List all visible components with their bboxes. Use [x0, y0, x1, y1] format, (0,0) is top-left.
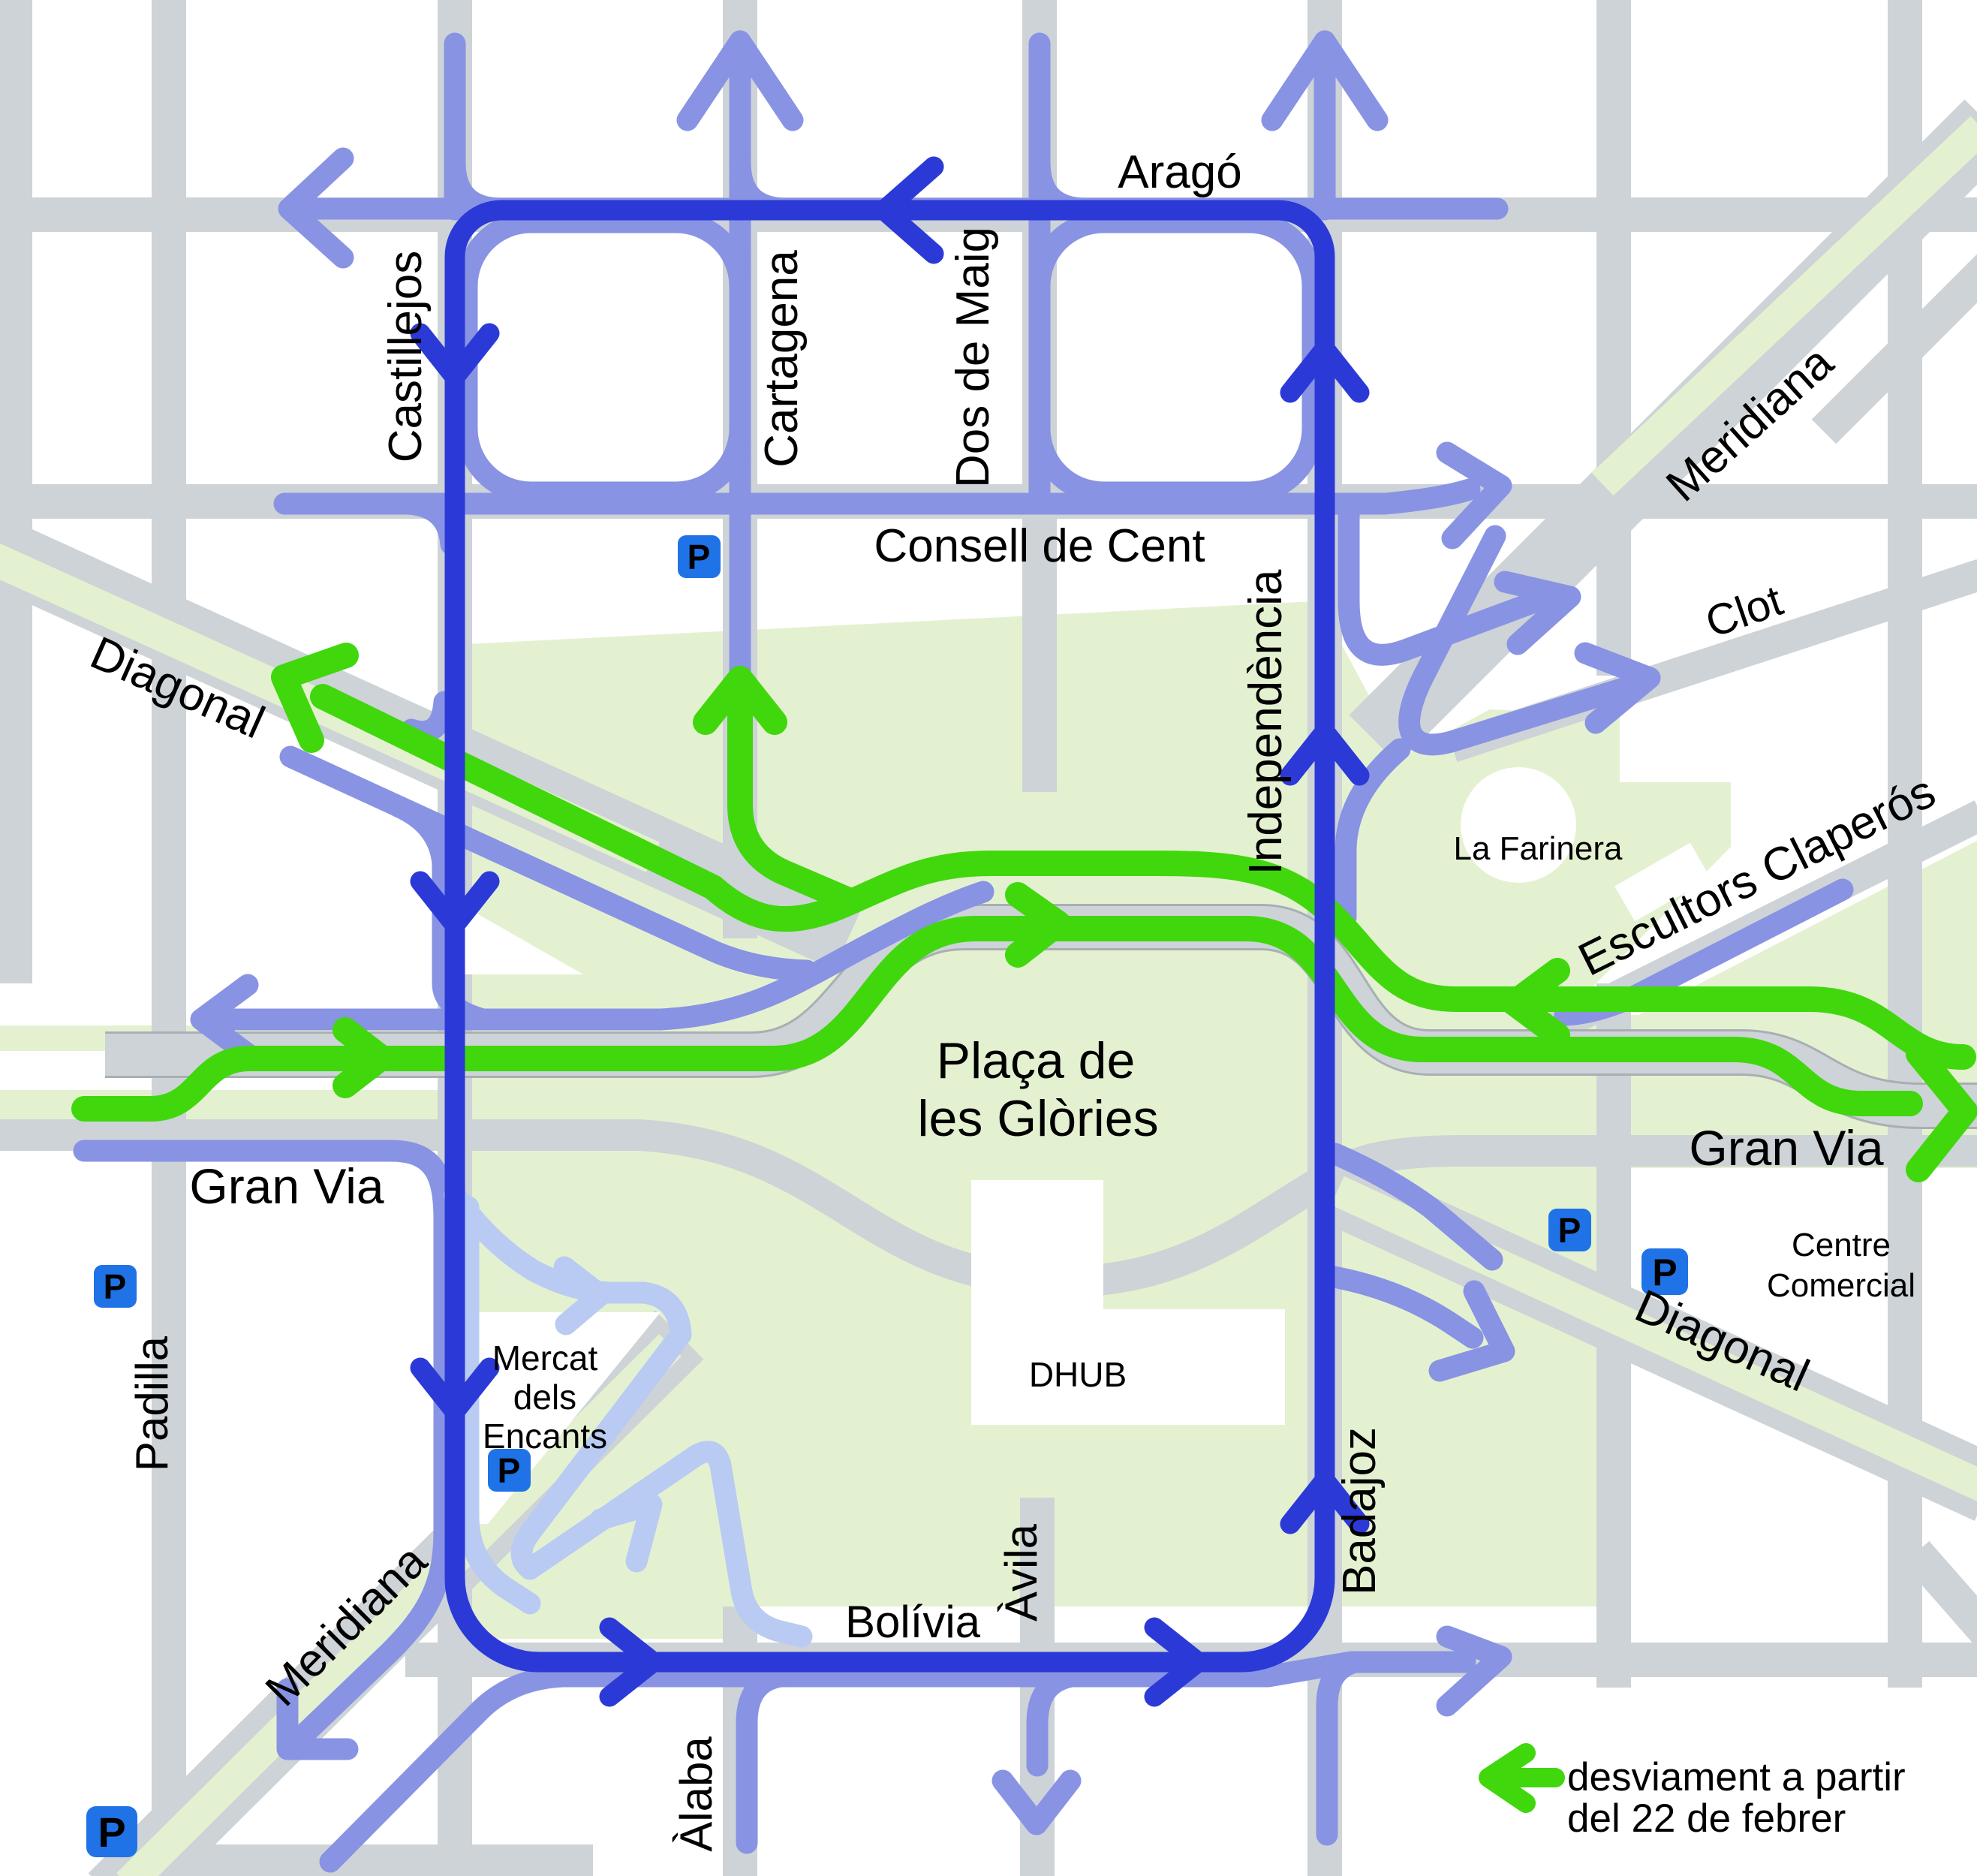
svg-text:DHUB: DHUB — [1029, 1355, 1127, 1394]
svg-text:P: P — [104, 1267, 127, 1306]
svg-text:La Farinera: La Farinera — [1453, 830, 1623, 867]
svg-text:Independència: Independència — [1240, 569, 1292, 875]
svg-text:Bolívia: Bolívia — [845, 1597, 981, 1647]
svg-text:desviament a partir: desviament a partir — [1567, 1755, 1906, 1799]
svg-text:P: P — [1558, 1211, 1581, 1250]
svg-text:Padilla: Padilla — [127, 1335, 177, 1471]
svg-text:Mercat: Mercat — [492, 1338, 598, 1378]
svg-text:Àvila: Àvila — [996, 1523, 1046, 1622]
svg-text:Àlaba: Àlaba — [671, 1736, 721, 1852]
svg-text:del 22 de febrer: del 22 de febrer — [1567, 1796, 1846, 1841]
svg-text:P: P — [498, 1451, 521, 1490]
svg-text:dels: dels — [513, 1378, 576, 1417]
svg-text:Dos de Maig: Dos de Maig — [947, 227, 999, 488]
svg-text:Aragó: Aragó — [1118, 146, 1241, 198]
svg-text:P: P — [98, 1808, 125, 1856]
svg-text:Gran Via: Gran Via — [1689, 1120, 1884, 1176]
svg-text:P: P — [688, 538, 711, 577]
svg-text:Encants: Encants — [483, 1417, 607, 1456]
svg-text:Consell de Cent: Consell de Cent — [874, 520, 1205, 572]
svg-text:Cartagena: Cartagena — [756, 250, 808, 468]
svg-text:Comercial: Comercial — [1767, 1267, 1915, 1304]
svg-text:Badajoz: Badajoz — [1334, 1427, 1386, 1595]
svg-text:Castillejos: Castillejos — [380, 251, 432, 463]
svg-text:Gran Via: Gran Via — [189, 1158, 384, 1214]
svg-text:Plaça de: Plaça de — [937, 1032, 1136, 1089]
svg-text:Centre: Centre — [1792, 1227, 1891, 1263]
svg-text:les Glòries: les Glòries — [917, 1090, 1158, 1147]
